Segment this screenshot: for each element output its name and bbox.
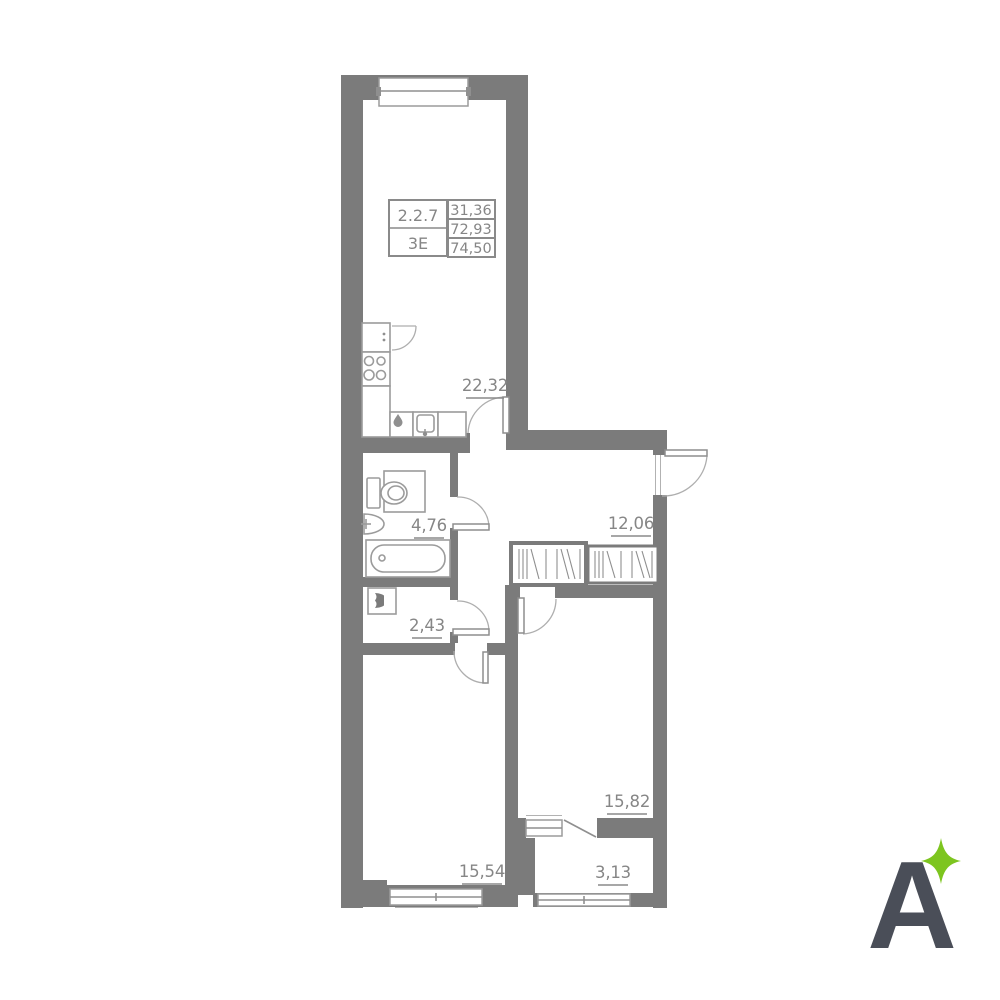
wardrobe-icon	[511, 543, 586, 585]
unit-number: 2.2.7	[398, 206, 439, 225]
fridge-icon	[362, 323, 416, 352]
washbasin-icon	[361, 514, 384, 534]
door-bedroom-right	[518, 598, 556, 634]
wall-bottom-left-corner	[363, 880, 387, 907]
room-area-label-bathroom: 4,76	[411, 516, 447, 535]
bathtub-icon	[366, 540, 450, 577]
window-bedroom-right-balcony	[526, 816, 596, 838]
logo: A	[867, 837, 961, 975]
wall-entry-frame-bottom	[653, 495, 667, 508]
wall-hallway-top-exterior	[506, 430, 667, 450]
room-area-label-kitchen-living: 22,32	[462, 376, 508, 395]
unit-area-total: 74,50	[450, 241, 492, 257]
door-bedroom-left	[454, 651, 488, 683]
floor-plan: 2.2.7 3E 31,36 72,93 74,50 22,32 4,76 2,…	[0, 0, 1000, 1000]
kitchen-sink-icon	[413, 412, 438, 437]
room-area-label-hallway: 12,06	[608, 514, 654, 533]
wall-kitchen-right-exterior	[506, 75, 528, 450]
unit-area-living: 31,36	[450, 203, 492, 219]
wall-laundry-right-upper	[450, 587, 458, 600]
door-entry	[656, 450, 708, 496]
kitchen-fixtures	[362, 323, 466, 437]
washing-machine-icon	[368, 588, 396, 614]
wardrobes	[511, 543, 658, 585]
door-bathroom	[453, 497, 489, 530]
room-area-label-bedroom-right: 15,82	[604, 792, 650, 811]
unit-area-main: 72,93	[450, 222, 492, 238]
window-bedroom-left	[390, 889, 482, 908]
wall-left-exterior	[341, 75, 363, 908]
stove-icon	[362, 352, 390, 386]
window-balcony-glazing	[538, 894, 630, 906]
door-laundry	[453, 601, 489, 635]
wardrobe-icon	[588, 546, 658, 583]
room-area-label-bedroom-left: 15,54	[459, 862, 505, 881]
unit-card: 2.2.7 3E 31,36 72,93 74,50	[389, 200, 495, 257]
wall-bathroom-laundry	[363, 577, 458, 587]
wall-bedroom-right-bottom-b	[597, 818, 667, 838]
balcony-door-leaf	[564, 820, 596, 837]
kitchen-cabinet	[362, 386, 390, 437]
wall-laundry-bottom	[341, 643, 455, 655]
room-area-label-balcony: 3,13	[595, 863, 631, 882]
kitchen-cabinet-droplet	[390, 412, 413, 437]
wall-bathroom-right-lower	[450, 528, 458, 577]
wall-bedrooms-divider	[505, 585, 518, 838]
wall-bathroom-right-upper	[450, 453, 458, 497]
wall-bedroom-right-bottom-a	[505, 818, 526, 838]
door-kitchen	[468, 397, 509, 433]
window-kitchen-top	[376, 78, 471, 106]
room-area-label-laundry: 2,43	[409, 616, 445, 635]
floor-plan-canvas: 2.2.7 3E 31,36 72,93 74,50 22,32 4,76 2,…	[0, 0, 1000, 1000]
unit-type: 3E	[408, 234, 428, 253]
kitchen-counter	[438, 412, 466, 437]
